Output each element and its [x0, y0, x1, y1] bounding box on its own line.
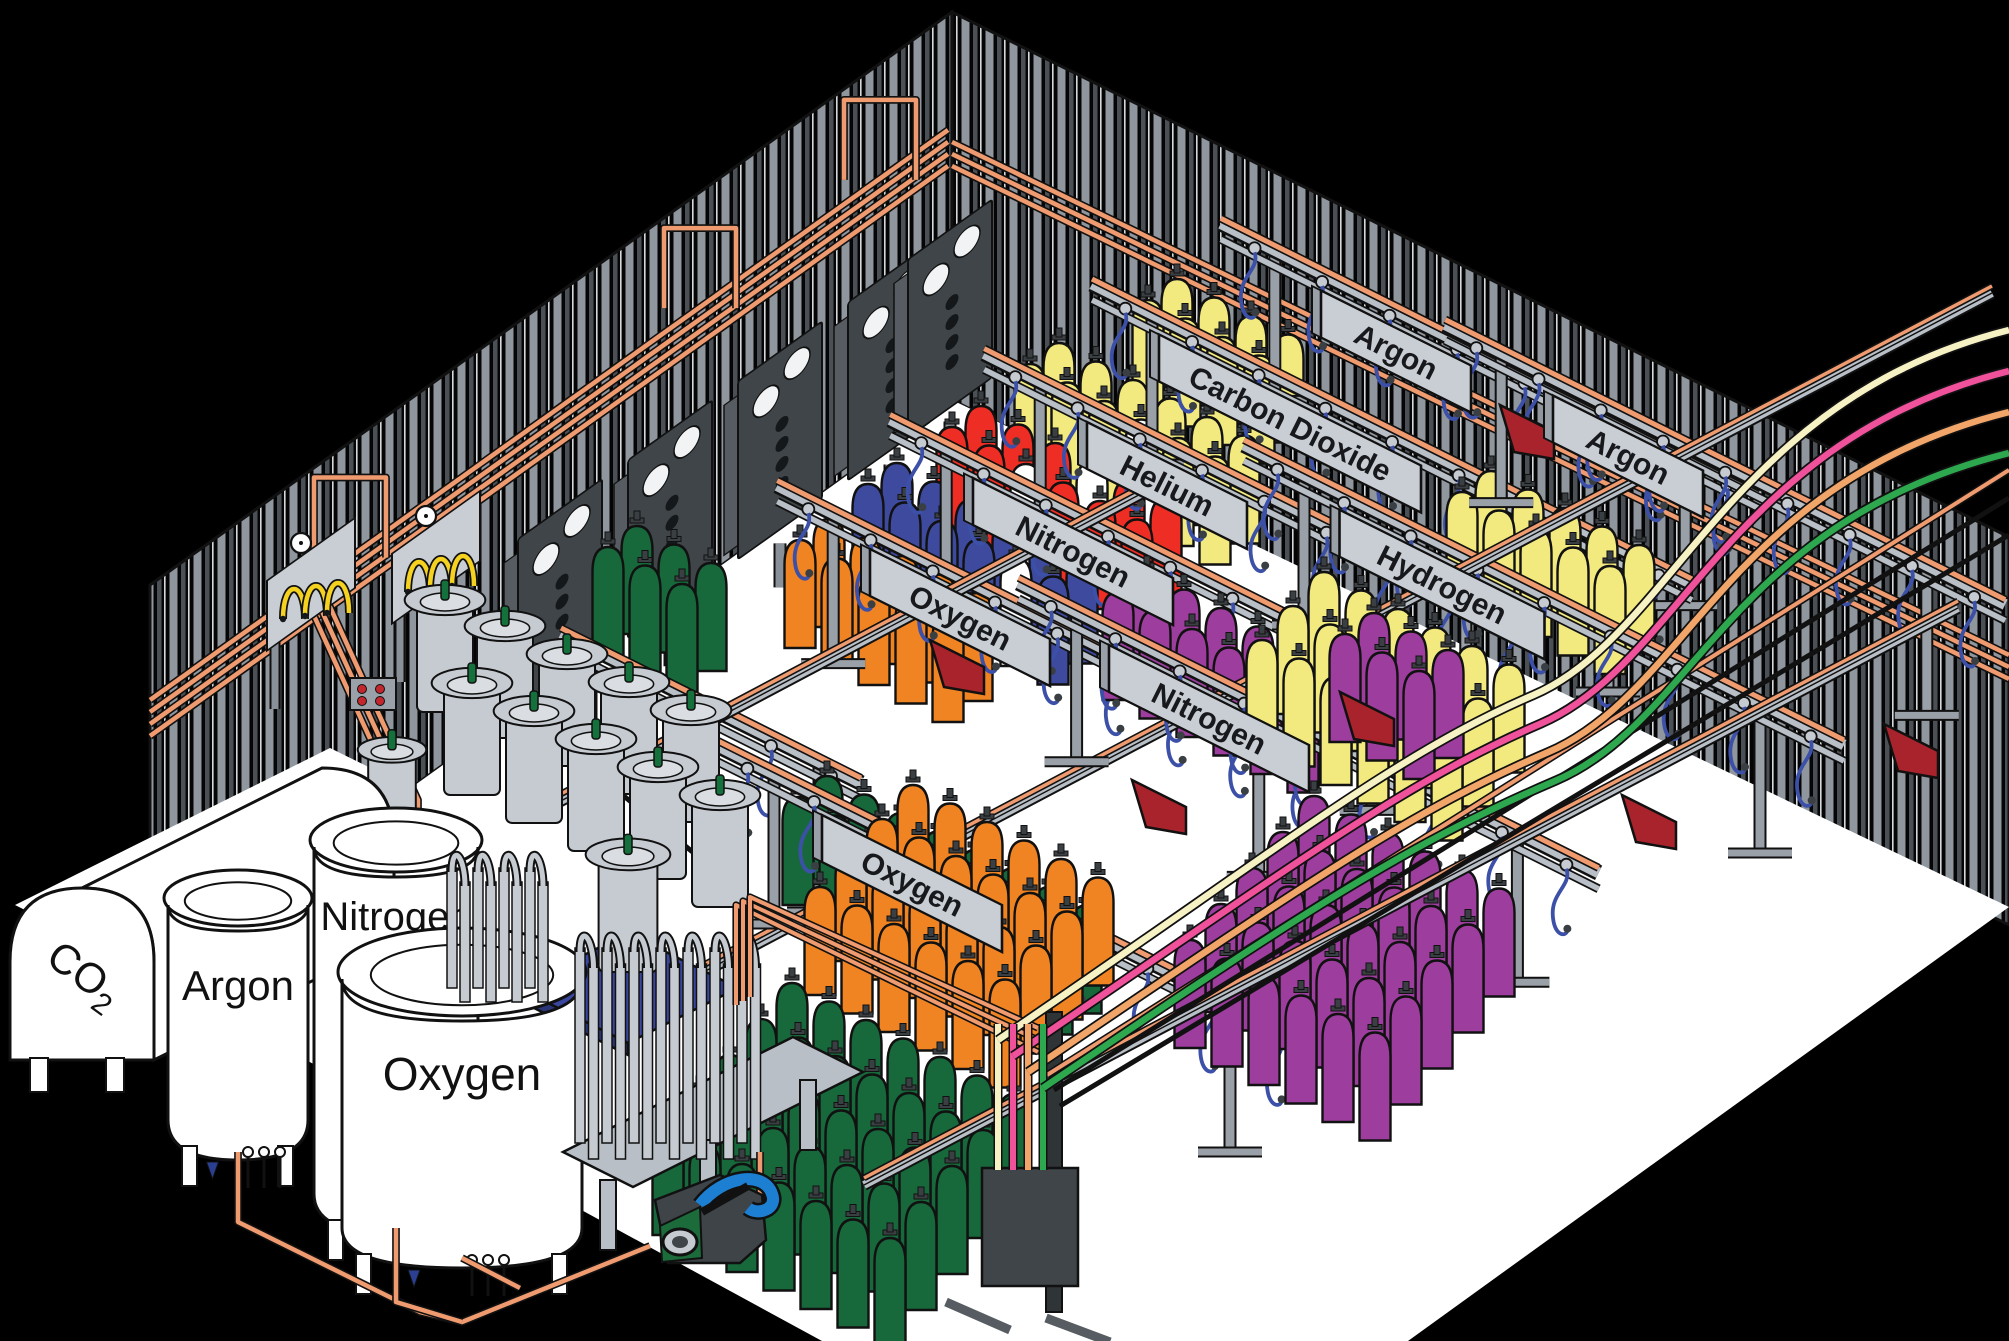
cryo-dewar [432, 663, 513, 795]
cryo-dewar [494, 691, 575, 823]
tank-label: Oxygen [383, 1048, 542, 1100]
control-box [350, 678, 396, 710]
tank-label: Argon [182, 962, 294, 1009]
scene-container: OxygenNitrogenHeliumCarbon DioxideArgonH… [0, 0, 2009, 1341]
cryo-dewar [680, 775, 761, 907]
gas-plant-illustration: OxygenNitrogenHeliumCarbon DioxideArgonH… [0, 0, 2009, 1341]
argon-tank: Argon [164, 870, 312, 1188]
cryo-dewar [556, 719, 637, 851]
